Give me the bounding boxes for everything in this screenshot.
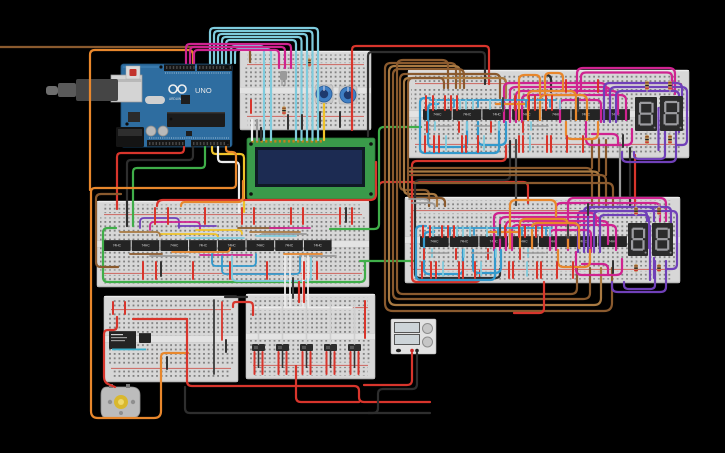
svg-text:74HC: 74HC: [314, 244, 323, 248]
svg-text:74HC: 74HC: [199, 244, 208, 248]
svg-text:74HC: 74HC: [433, 113, 442, 117]
svg-text:74HC: 74HC: [113, 244, 122, 248]
svg-text:74HC: 74HC: [285, 244, 294, 248]
svg-text:74HC: 74HC: [430, 240, 439, 244]
svg-text:74HC: 74HC: [460, 240, 469, 244]
svg-text:74HC: 74HC: [463, 113, 472, 117]
svg-text:74HC: 74HC: [228, 244, 237, 248]
svg-text:74HC: 74HC: [256, 244, 265, 248]
svg-text:74HC: 74HC: [141, 244, 150, 248]
svg-text:74HC: 74HC: [493, 113, 502, 117]
svg-text:UNO: UNO: [195, 86, 212, 95]
svg-text:74HC: 74HC: [522, 113, 531, 117]
svg-text:74HC: 74HC: [170, 244, 179, 248]
